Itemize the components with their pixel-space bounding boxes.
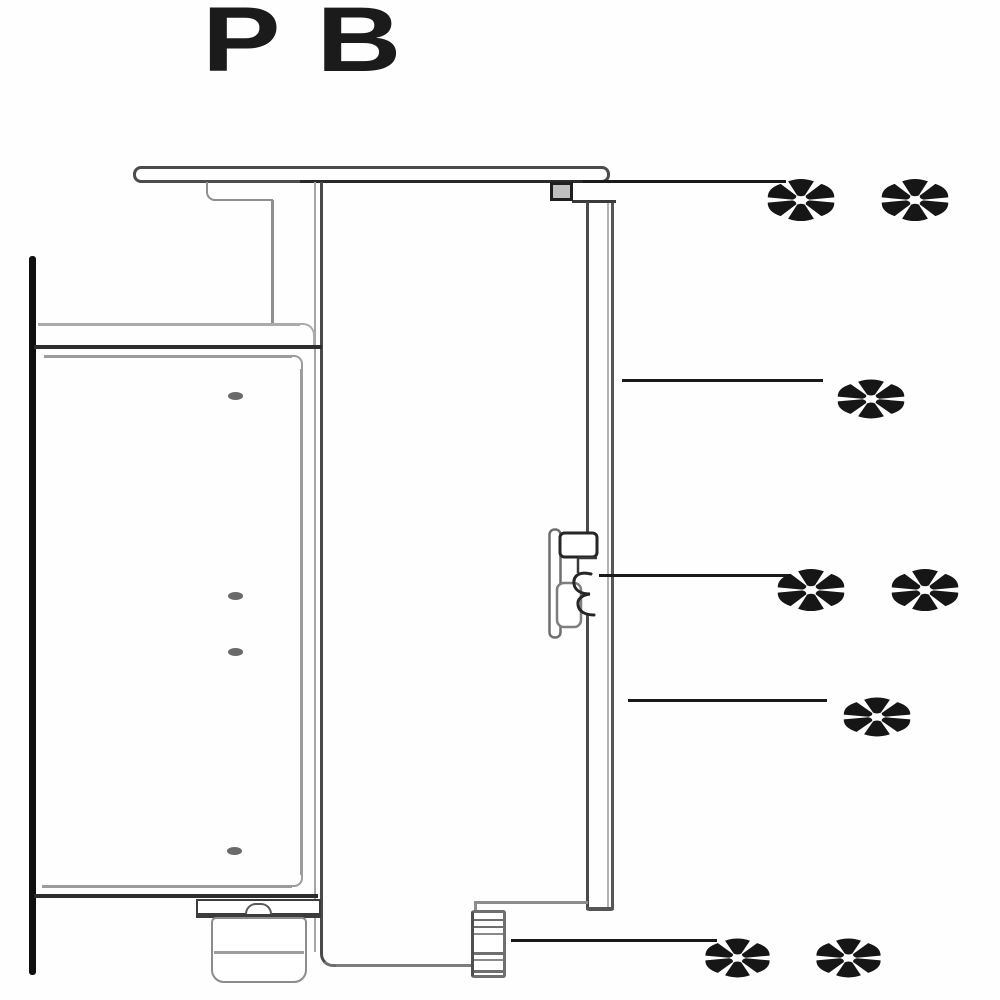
wall-panel-line	[29, 256, 36, 975]
callout-front-panel-upper	[828, 375, 914, 423]
asterisk-icon	[696, 934, 779, 982]
asterisk-icon	[882, 564, 968, 616]
plinth-screw-dome	[245, 903, 272, 914]
front-panel-bottom-edge	[586, 907, 614, 911]
asterisk-icon	[834, 693, 920, 741]
callout-panel-clip	[768, 564, 968, 616]
clip-tab	[578, 558, 597, 573]
thread-stripe	[474, 919, 506, 922]
side-panel-inner-line	[314, 182, 316, 952]
front-panel-inner-line-lower	[586, 614, 589, 910]
asterisk-icon	[828, 375, 914, 423]
front-panel-top-edge	[572, 200, 616, 203]
cabinet-top-rail-2	[34, 345, 322, 349]
clip-upper-body	[560, 533, 597, 557]
cabinet-top-rail-3	[44, 355, 292, 358]
plinth-foot-block-line	[214, 951, 304, 954]
asterisk-icon	[872, 174, 958, 226]
page-title: PB	[202, 0, 437, 86]
plinth-foot-block	[211, 917, 307, 983]
leveling-foot	[471, 910, 506, 978]
shelf-hole-dot	[228, 592, 243, 600]
cabinet-top-rail-1	[38, 323, 300, 326]
callout-front-panel-lower	[834, 693, 920, 741]
leveling-foot-link-h	[475, 901, 588, 904]
asterisk-icon	[758, 174, 844, 226]
cabinet-inner-edge-corner	[291, 873, 303, 887]
leader-line-front-panel-upper	[622, 379, 823, 382]
shelf-hole-dot	[227, 847, 242, 855]
shelf-hole-dot	[228, 648, 243, 656]
callout-adjustable-foot	[696, 934, 890, 982]
worktop-support-bracket	[206, 182, 273, 201]
cabinet-bottom-rail-1	[42, 885, 292, 888]
thread-stripe	[474, 933, 506, 935]
asterisk-icon	[768, 564, 854, 616]
callout-worktop-connector	[758, 174, 958, 226]
cabinet-inner-edge	[300, 369, 303, 875]
front-panel-inner-line-upper	[586, 202, 589, 532]
leader-line-front-panel-lower	[628, 699, 827, 702]
leader-line-adjustable-foot	[511, 939, 717, 942]
thread-stripe	[474, 952, 506, 955]
side-panel-outer-line	[320, 182, 323, 950]
side-panel-bottom-extension	[336, 964, 473, 967]
thread-stripe	[474, 959, 506, 962]
thread-stripe	[474, 970, 506, 973]
cabinet-top-rail-3-corner	[291, 355, 303, 370]
leader-line-panel-clip	[599, 574, 791, 577]
worktop-connector-fitting	[550, 182, 573, 201]
asterisk-icon	[807, 934, 890, 982]
thread-stripe	[474, 926, 506, 929]
cabinet-bottom-rail-2	[34, 894, 318, 898]
shelf-hole-dot	[228, 392, 243, 400]
assembly-diagram: PB	[0, 0, 1000, 1000]
worktop-support-bracket-leg	[271, 200, 274, 324]
panel-clip	[544, 524, 624, 654]
leader-line-worktop-connector	[583, 180, 786, 183]
